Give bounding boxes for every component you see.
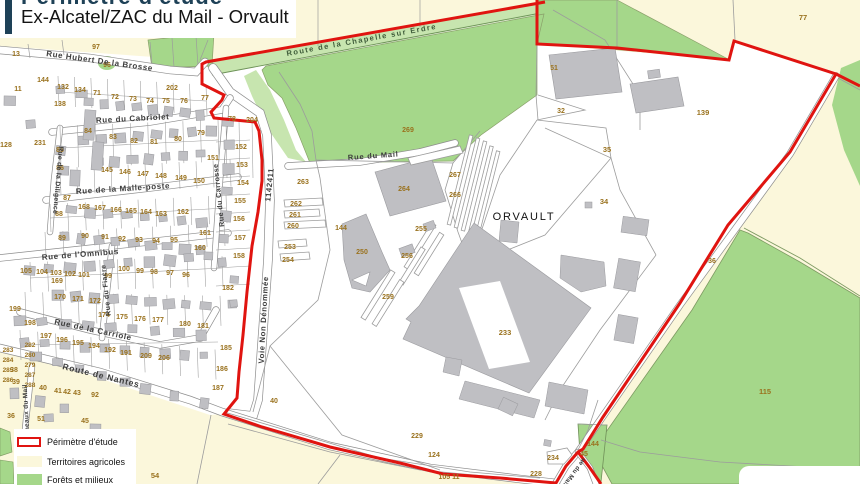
svg-text:98: 98 <box>150 269 158 276</box>
svg-text:195: 195 <box>72 340 84 347</box>
svg-text:158: 158 <box>233 253 245 260</box>
svg-text:167: 167 <box>94 205 106 212</box>
svg-text:169: 169 <box>51 278 63 285</box>
svg-text:139: 139 <box>697 108 710 117</box>
svg-text:256: 256 <box>401 253 413 260</box>
svg-text:93: 93 <box>135 237 143 244</box>
svg-text:100: 100 <box>118 266 130 273</box>
svg-text:132: 132 <box>57 84 69 91</box>
svg-text:103: 103 <box>50 270 62 277</box>
svg-text:77: 77 <box>799 13 807 22</box>
svg-text:156: 156 <box>233 216 245 223</box>
svg-text:84: 84 <box>84 128 92 135</box>
svg-text:157: 157 <box>234 235 246 242</box>
svg-text:97: 97 <box>92 44 100 51</box>
svg-text:150: 150 <box>193 178 205 185</box>
svg-text:234: 234 <box>547 455 559 462</box>
svg-text:254: 254 <box>282 257 294 264</box>
svg-text:148: 148 <box>155 173 167 180</box>
svg-text:170: 170 <box>54 294 66 301</box>
svg-text:96: 96 <box>182 272 190 279</box>
svg-text:80: 80 <box>174 136 182 143</box>
svg-text:180: 180 <box>179 321 191 328</box>
svg-text:104: 104 <box>36 269 48 276</box>
svg-text:198: 198 <box>24 320 36 327</box>
svg-text:279: 279 <box>25 362 36 369</box>
svg-text:35: 35 <box>603 145 611 154</box>
svg-text:ORVAULT: ORVAULT <box>493 211 556 223</box>
svg-text:71: 71 <box>93 90 101 97</box>
svg-text:145: 145 <box>101 167 113 174</box>
svg-text:228: 228 <box>530 471 542 478</box>
svg-text:152: 152 <box>235 144 247 151</box>
svg-text:45: 45 <box>81 418 89 425</box>
svg-text:175: 175 <box>116 314 128 321</box>
svg-text:262: 262 <box>290 201 302 208</box>
svg-text:186: 186 <box>216 366 228 373</box>
svg-text:153: 153 <box>236 162 248 169</box>
svg-text:43: 43 <box>73 390 81 397</box>
svg-text:164: 164 <box>140 209 152 216</box>
svg-text:172: 172 <box>89 298 101 305</box>
svg-text:90: 90 <box>81 233 89 240</box>
svg-text:199: 199 <box>9 306 21 313</box>
svg-text:182: 182 <box>222 285 234 292</box>
svg-text:76: 76 <box>180 98 188 105</box>
svg-text:40: 40 <box>270 398 278 405</box>
svg-text:34: 34 <box>600 197 609 206</box>
svg-text:181: 181 <box>197 323 209 330</box>
svg-text:231: 231 <box>34 140 46 147</box>
svg-text:77: 77 <box>201 95 209 102</box>
svg-text:267: 267 <box>449 172 461 179</box>
svg-text:146: 146 <box>119 169 131 176</box>
svg-text:102: 102 <box>64 271 76 278</box>
svg-text:209: 209 <box>140 353 152 360</box>
svg-text:161: 161 <box>199 230 211 237</box>
svg-text:187: 187 <box>212 385 224 392</box>
svg-text:138: 138 <box>54 101 66 108</box>
svg-text:250: 250 <box>356 249 368 256</box>
svg-text:260: 260 <box>287 223 299 230</box>
svg-text:42: 42 <box>63 389 71 396</box>
svg-text:185: 185 <box>220 345 232 352</box>
svg-text:13: 13 <box>12 51 20 58</box>
svg-text:92: 92 <box>118 236 126 243</box>
svg-text:155: 155 <box>234 198 246 205</box>
svg-text:81: 81 <box>150 139 158 146</box>
svg-text:147: 147 <box>137 171 149 178</box>
svg-text:204: 204 <box>246 117 258 124</box>
svg-text:286: 286 <box>3 377 14 384</box>
svg-text:287: 287 <box>25 372 36 379</box>
svg-text:128: 128 <box>0 142 12 149</box>
svg-text:266: 266 <box>449 192 461 199</box>
svg-text:83: 83 <box>109 134 117 141</box>
svg-text:284: 284 <box>3 357 14 364</box>
svg-text:124: 124 <box>428 452 440 459</box>
svg-text:280: 280 <box>25 352 36 359</box>
svg-text:197: 197 <box>40 333 52 340</box>
svg-text:101: 101 <box>78 272 90 279</box>
svg-text:259: 259 <box>382 294 394 301</box>
svg-text:74: 74 <box>146 98 154 105</box>
svg-text:196: 196 <box>56 337 68 344</box>
svg-text:149: 149 <box>175 175 187 182</box>
svg-text:72: 72 <box>111 94 119 101</box>
svg-text:105: 105 <box>20 268 32 275</box>
svg-text:263: 263 <box>297 179 309 186</box>
svg-text:36: 36 <box>708 258 716 265</box>
svg-text:144: 144 <box>335 225 347 232</box>
svg-text:51: 51 <box>37 416 45 423</box>
svg-text:11: 11 <box>14 86 22 93</box>
svg-text:92: 92 <box>91 392 99 399</box>
svg-text:282: 282 <box>25 342 36 349</box>
svg-text:144: 144 <box>587 441 599 448</box>
svg-text:285: 285 <box>3 367 14 374</box>
svg-text:160: 160 <box>194 245 206 252</box>
svg-text:166: 166 <box>110 207 122 214</box>
svg-text:105 11: 105 11 <box>438 474 459 481</box>
svg-text:87: 87 <box>63 195 71 202</box>
svg-text:162: 162 <box>177 209 189 216</box>
svg-text:115: 115 <box>759 387 771 396</box>
svg-text:171: 171 <box>72 296 84 303</box>
svg-text:32: 32 <box>557 108 565 115</box>
svg-text:36: 36 <box>7 413 15 420</box>
svg-text:82: 82 <box>130 138 138 145</box>
svg-text:269: 269 <box>402 127 414 134</box>
svg-text:51: 51 <box>550 65 558 72</box>
svg-text:89: 89 <box>58 235 66 242</box>
svg-text:78: 78 <box>228 116 236 123</box>
svg-text:176: 176 <box>134 316 146 323</box>
svg-text:283: 283 <box>3 347 14 354</box>
svg-text:206: 206 <box>158 355 170 362</box>
svg-text:192: 192 <box>104 347 116 354</box>
svg-text:154: 154 <box>237 180 249 187</box>
svg-text:99: 99 <box>136 268 144 275</box>
svg-text:144: 144 <box>37 77 49 84</box>
svg-text:134: 134 <box>74 87 86 94</box>
svg-text:91: 91 <box>101 234 109 241</box>
svg-text:255: 255 <box>415 226 427 233</box>
svg-text:40: 40 <box>39 385 47 392</box>
svg-text:194: 194 <box>88 343 100 350</box>
svg-text:261: 261 <box>289 212 301 219</box>
svg-text:54: 54 <box>151 471 160 480</box>
svg-text:73: 73 <box>129 96 137 103</box>
svg-text:151: 151 <box>207 155 219 162</box>
svg-text:41: 41 <box>54 388 62 395</box>
svg-text:177: 177 <box>152 317 164 324</box>
svg-text:202: 202 <box>166 85 178 92</box>
svg-text:163: 163 <box>155 211 167 218</box>
svg-text:253: 253 <box>284 244 296 251</box>
svg-text:75: 75 <box>162 98 170 105</box>
svg-text:97: 97 <box>166 270 174 277</box>
svg-text:229: 229 <box>411 433 423 440</box>
svg-text:191: 191 <box>120 350 132 357</box>
svg-text:168: 168 <box>78 204 90 211</box>
svg-text:233: 233 <box>499 328 512 337</box>
svg-text:95: 95 <box>170 237 178 244</box>
svg-text:79: 79 <box>197 130 205 137</box>
svg-text:94: 94 <box>152 238 160 245</box>
svg-text:264: 264 <box>398 186 410 193</box>
svg-text:165: 165 <box>125 208 137 215</box>
